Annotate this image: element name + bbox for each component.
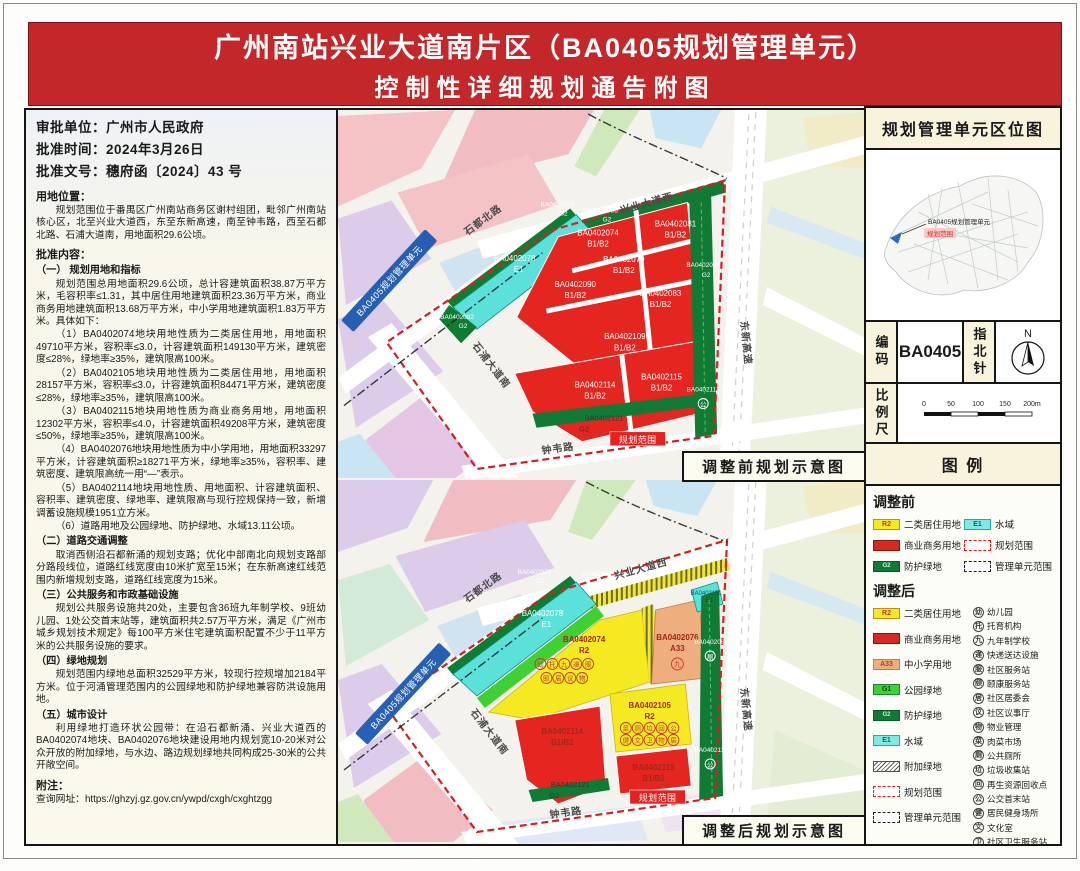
- legend-item: G2防护绿地: [873, 708, 973, 722]
- parcel-label: BA0402081: [655, 220, 697, 229]
- svg-text:服: 服: [585, 660, 592, 668]
- svg-text:B1/B2: B1/B2: [587, 240, 609, 249]
- swatch-g2: G2: [873, 561, 900, 572]
- legend-facility: 垃垃圾收集站: [973, 764, 1053, 776]
- svg-text:议: 议: [567, 674, 574, 682]
- parcel-label: BA0402082: [440, 314, 474, 321]
- svg-text:B1/B2: B1/B2: [584, 392, 606, 401]
- scale-label: 比例尺: [872, 388, 891, 439]
- parcel-label: BA0402115: [633, 763, 675, 772]
- facility-icon: 服: [973, 664, 984, 675]
- swatch-unit-boundary: [873, 812, 900, 823]
- swatch-a33: A33: [873, 659, 900, 670]
- scale-row: 比例尺 0 50 100 150 200m: [864, 382, 1062, 444]
- legend-title: 图 例: [864, 442, 1062, 486]
- unit-code: BA0405: [898, 322, 964, 382]
- svg-text:G2: G2: [702, 272, 711, 279]
- svg-text:公: 公: [707, 762, 714, 769]
- svg-text:B1/B2: B1/B2: [551, 738, 574, 747]
- legend-facility: 托托育机构: [973, 620, 1053, 632]
- svg-text:50: 50: [947, 401, 955, 408]
- legend-item: G2防护绿地: [873, 559, 962, 573]
- paragraph: （6）道路用地及公园绿地、防护绿地、水域13.11公顷。: [36, 521, 326, 533]
- legend-item: R2二类居住用地: [873, 606, 973, 620]
- legend-item: 管理单元范围: [873, 810, 973, 824]
- svg-text:150: 150: [999, 401, 1011, 408]
- map-before-caption: 调整前规划示意图: [682, 451, 866, 482]
- legend-after-heading: 调整后: [873, 581, 1053, 601]
- facility-icon: 厕: [973, 750, 984, 761]
- svg-text:G2: G2: [536, 578, 545, 585]
- legend-facility: 居社区居委会: [973, 692, 1053, 704]
- legend-facility: 物物业管理: [973, 721, 1053, 733]
- svg-text:G2: G2: [459, 323, 468, 330]
- legend-item: 规划范围: [873, 785, 973, 799]
- paragraph: （4）BA0402076地块用地性质为中小学用地，用地面积33297平方米，计容…: [36, 444, 326, 481]
- facility-icon: 幼: [973, 607, 984, 618]
- legend-item: 附加绿地: [873, 759, 973, 773]
- svg-text:B1/B2: B1/B2: [665, 231, 687, 240]
- code-row: 编码 BA0405 指北针 N: [864, 320, 1062, 384]
- parcel-label: BA0402121: [585, 414, 624, 423]
- legend-item: 规划范围: [964, 538, 1053, 552]
- svg-text:文: 文: [634, 735, 641, 744]
- legend-facility: 厕公共厕所: [973, 750, 1053, 762]
- section-heading: 批准内容：: [36, 248, 326, 262]
- svg-text:规划范围: 规划范围: [619, 434, 657, 445]
- svg-text:九: 九: [561, 659, 568, 668]
- svg-text:N: N: [1024, 328, 1032, 340]
- legend-facility: 递快递送达设施: [973, 649, 1053, 661]
- svg-text:居: 居: [555, 674, 562, 682]
- sub-heading: （一） 规划用地和指标: [36, 264, 326, 277]
- parcel-label: BA0402117: [695, 747, 729, 754]
- facility-icon: 居: [973, 693, 984, 704]
- sub-heading: （三）公共服务和市政基础设施: [36, 589, 326, 602]
- swatch-r2: R2: [873, 608, 900, 619]
- legend-before-items: R2二类居住用地 商业商务用地 G2防护绿地 E1水域 规划范围 管理单元范围: [873, 517, 1053, 580]
- swatch-g1: G1: [873, 684, 900, 695]
- paragraph: （5）BA0402114地块用地性质、用地面积、计容建筑面积、容积率、建筑密度、…: [36, 483, 326, 520]
- legend-item: R2二类居住用地: [873, 517, 962, 531]
- legend-body: 调整前 R2二类居住用地 商业商务用地 G2防护绿地 E1水域 规划范围 管理单…: [864, 484, 1062, 846]
- svg-text:居: 居: [670, 736, 677, 744]
- svg-text:物: 物: [658, 735, 665, 744]
- swatch-scope-boundary: [873, 786, 900, 797]
- facility-icon: 菜: [973, 736, 984, 747]
- location-map-title: 规划管理单元区位图: [864, 106, 1062, 150]
- svg-text:颐: 颐: [543, 674, 550, 682]
- parcel-label: BA0402079: [603, 255, 645, 264]
- page-title-line2: 控制性详细规划通告附图: [375, 68, 716, 103]
- svg-text:G1: G1: [600, 580, 609, 587]
- legend-facility: 菜肉菜市场: [973, 736, 1053, 748]
- svg-text:幼: 幼: [537, 659, 543, 668]
- svg-text:E1: E1: [514, 265, 524, 274]
- location-callout-unit: BA0405规划管理单元: [928, 217, 991, 226]
- code-label: 编码: [872, 335, 891, 369]
- svg-text:G2: G2: [603, 217, 612, 224]
- parcel-label: BA0402114: [541, 727, 583, 736]
- svg-text:菜: 菜: [623, 723, 630, 732]
- svg-text:G2: G2: [549, 791, 559, 800]
- legend-before-heading: 调整前: [873, 492, 1053, 512]
- parcel-label: BA0402074: [577, 229, 619, 238]
- legend-facilities: 幼幼儿园 托托育机构 九九年制学校 递快递送达设施 服社区服务站 颐颐康服务站 …: [973, 606, 1053, 846]
- legend-facility: 文文化室: [973, 822, 1053, 834]
- legend-facility: 幼幼儿园: [973, 606, 1053, 618]
- svg-text:厕: 厕: [707, 653, 714, 661]
- svg-text:B1/B2: B1/B2: [642, 774, 665, 783]
- map-after: BA0402073 G2 BA0402068 G1 BA0402078 E1 B…: [338, 480, 864, 844]
- svg-text:公: 公: [700, 402, 707, 409]
- legend-facility: 回再生资源回收点: [973, 779, 1053, 791]
- parcel-label: BA0402086: [694, 639, 728, 646]
- legend-facility: 健居民健身场所: [973, 807, 1053, 819]
- legend-item: E1水域: [873, 734, 973, 748]
- legend-item: G1公园绿地: [873, 683, 973, 697]
- swatch-e1: E1: [873, 735, 900, 746]
- swatch-commercial: [873, 633, 900, 644]
- facility-icon: 议: [973, 707, 984, 718]
- sub-heading: （五）城市设计: [36, 709, 326, 722]
- svg-text:厕: 厕: [634, 724, 641, 732]
- location-map-canvas: BA0405规划管理单元 规划范围: [868, 152, 1058, 318]
- map-before-canvas: BA0402073 G2 BA0402066 G2 BA0402078 E1 B…: [338, 110, 864, 480]
- facility-icon: 回: [973, 779, 984, 790]
- approval-docno: 批准文号：穗府函〔2024〕43 号: [36, 161, 326, 183]
- legend-facility: 九九年制学校: [973, 635, 1053, 647]
- swatch-additional-green: [873, 761, 900, 772]
- svg-text:B1/B2: B1/B2: [564, 291, 586, 300]
- svg-text:递: 递: [573, 659, 580, 668]
- parcel-label: BA0402086: [686, 262, 720, 269]
- legend-item: 商业商务用地: [873, 538, 962, 552]
- paragraph: 取消西侧沿石都新涌的规划支路；优化中部南北向规划支路部分路段线位，道路红线宽度由…: [36, 550, 326, 587]
- approval-unit: 审批单位：广州市人民政府: [36, 117, 326, 139]
- swatch-r2: R2: [873, 519, 900, 530]
- svg-text:E1: E1: [542, 620, 552, 629]
- parcel-label: BA0402078: [522, 609, 564, 618]
- svg-text:R2: R2: [579, 646, 590, 655]
- svg-text:A33: A33: [670, 644, 685, 653]
- svg-text:B1/B2: B1/B2: [650, 300, 672, 309]
- svg-text:垃: 垃: [646, 723, 653, 732]
- map-column: BA0402073 G2 BA0402066 G2 BA0402078 E1 B…: [336, 108, 866, 846]
- parcel-label: BA0402105: [628, 701, 671, 710]
- section-heading: 用地位置：: [36, 190, 326, 204]
- parcel-label: BA0402066: [584, 208, 618, 215]
- approval-date: 批准时间：2024年3月26日: [36, 139, 326, 161]
- svg-text:健: 健: [623, 735, 630, 744]
- svg-text:托: 托: [549, 659, 556, 668]
- svg-text:B1/B2: B1/B2: [613, 266, 635, 275]
- note-heading: 附注：: [36, 779, 326, 793]
- svg-text:公: 公: [670, 725, 677, 732]
- parcel-label: BA0402115: [641, 372, 682, 381]
- legend-item: A33中小学用地: [873, 657, 973, 671]
- svg-text:100: 100: [972, 401, 984, 408]
- location-map: BA0405规划管理单元 规划范围: [864, 148, 1062, 322]
- paragraph: （3）BA0402115地块用地性质为商业商务用地，用地面积12302平方米，容…: [36, 406, 326, 443]
- parcel-label: BA0402073: [540, 201, 574, 208]
- paragraph: （2）BA0402105地块用地性质为二类居住用地，用地面积28157平方米，容…: [36, 368, 326, 405]
- facility-icon: 公: [973, 794, 984, 805]
- parcel-label: BA0402151: [691, 591, 723, 597]
- paragraph: 规划范围内绿地总面积32529平方米，较现行控规增加2184平方米。位于河涌管理…: [36, 669, 326, 706]
- facility-icon: 健: [973, 808, 984, 819]
- parcel-label: BA0402073: [518, 569, 552, 576]
- facility-icon: 文: [973, 822, 984, 833]
- right-panel: 规划管理单元区位图 BA0405规划管理单元 规划范围 编码 BA0405 指北…: [864, 108, 1062, 846]
- facility-icon: 垃: [973, 765, 984, 776]
- paragraph: 规划范围总用地面积29.6公顷，总计容建筑面积38.87万平方米，毛容积率≤1.…: [36, 279, 326, 329]
- scope-banner: 规划范围: [610, 432, 666, 446]
- svg-text:0: 0: [922, 401, 926, 408]
- svg-text:E1: E1: [706, 598, 714, 604]
- swatch-scope-boundary: [964, 540, 991, 551]
- map-after-canvas: BA0402073 G2 BA0402068 G1 BA0402078 E1 B…: [338, 480, 864, 844]
- page-title-line1: 广州南站兴业大道南片区（BA0405规划管理单元）: [214, 26, 876, 65]
- svg-text:B1/B2: B1/B2: [614, 343, 636, 352]
- facility-icon: 物: [973, 722, 984, 733]
- legend-item: 管理单元范围: [964, 559, 1053, 573]
- svg-text:G2: G2: [579, 425, 589, 434]
- legend-facility: 卫社区卫生服务站: [973, 836, 1053, 846]
- svg-text:G2: G2: [559, 211, 568, 218]
- svg-text:R2: R2: [645, 712, 656, 721]
- svg-text:B1/B2: B1/B2: [651, 383, 673, 392]
- compass-label: 指北针: [970, 327, 989, 378]
- parcel-label: BA0402076: [656, 633, 699, 642]
- svg-text:九: 九: [674, 659, 681, 668]
- svg-text:物: 物: [579, 673, 586, 682]
- legend-facility: 公公交首末站: [973, 793, 1053, 805]
- facility-icon: 九: [973, 635, 984, 646]
- facility-icon: 托: [973, 621, 984, 632]
- map-after-caption: 调整后规划示意图: [682, 815, 866, 846]
- paragraph: （1）BA0402074地块用地性质为二类居住用地，用地面积49710平方米，容…: [36, 329, 326, 366]
- parcel-label: BA0402078: [494, 254, 536, 263]
- sub-heading: （二）道路交通调整: [36, 535, 326, 548]
- legend-item: 商业商务用地: [873, 632, 973, 646]
- scope-banner: 规划范围: [630, 790, 686, 804]
- query-url: 查询网址：https://ghzyj.gz.gov.cn/ywpd/cxgh/c…: [36, 794, 326, 806]
- facility-icon: 卫: [973, 837, 984, 846]
- parcel-label: BA0402121: [551, 780, 590, 789]
- swatch-commercial: [873, 540, 900, 551]
- legend-item: E1水域: [964, 517, 1053, 531]
- paragraph: 利用绿地打造环状公园带：在沿石都新涌、兴业大道西的BA0402074地块、BA0…: [36, 723, 326, 773]
- parcel-label: BA0402068: [581, 571, 615, 578]
- north-arrow-icon: N: [1000, 324, 1056, 380]
- sub-heading: （四）绿地规划: [36, 655, 326, 668]
- paragraph: 规划公共服务设施共20处，主要包含36班九年制学校、9班幼儿园、1处公交首末站等…: [36, 603, 326, 653]
- legend-after-items: R2二类居住用地 商业商务用地 A33中小学用地 G1公园绿地 G2防护绿地 E…: [873, 606, 1053, 846]
- svg-text:规划范围: 规划范围: [639, 792, 677, 803]
- legend-facility: 议社区议事厅: [973, 707, 1053, 719]
- parcel-label: BA0402109: [604, 332, 646, 341]
- title-bar: 广州南站兴业大道南片区（BA0405规划管理单元） 控制性详细规划通告附图: [28, 22, 1062, 106]
- parcel-label: BA0402117: [687, 386, 721, 393]
- swatch-unit-boundary: [964, 561, 991, 572]
- scale-bar: 0 50 100 150 200m: [914, 396, 1044, 430]
- map-before: BA0402073 G2 BA0402066 G2 BA0402078 E1 B…: [338, 110, 864, 480]
- facility-icon: 递: [973, 650, 984, 661]
- parcel-label: BA0402074: [563, 635, 606, 644]
- svg-text:回: 回: [658, 724, 664, 732]
- swatch-e1: E1: [964, 519, 991, 530]
- parcel-label: BA0402083: [640, 289, 682, 298]
- parcel-label: BA0402114: [575, 380, 616, 389]
- svg-text:卫: 卫: [646, 736, 653, 744]
- left-text-panel: 审批单位：广州市人民政府 批准时间：2024年3月26日 批准文号：穗府函〔20…: [24, 108, 338, 846]
- swatch-g2: G2: [873, 710, 900, 721]
- svg-text:200m: 200m: [1023, 401, 1041, 408]
- legend-facility: 颐颐康服务站: [973, 678, 1053, 690]
- paragraph: 规划范围位于番禺区广州南站商务区谢村组团，毗邻广州南站核心区，北至兴业大道西，东…: [36, 205, 326, 242]
- facility-icon: 颐: [973, 678, 984, 689]
- notice-sheet: 广州南站兴业大道南片区（BA0405规划管理单元） 控制性详细规划通告附图 审批…: [0, 0, 1080, 871]
- location-callout-scope: 规划范围: [927, 229, 953, 238]
- body-text: 用地位置： 规划范围位于番禺区广州南站商务区谢村组团，毗邻广州南站核心区，北至兴…: [36, 190, 326, 807]
- parcel-label: BA0402090: [554, 280, 596, 289]
- legend-facility: 服社区服务站: [973, 664, 1053, 676]
